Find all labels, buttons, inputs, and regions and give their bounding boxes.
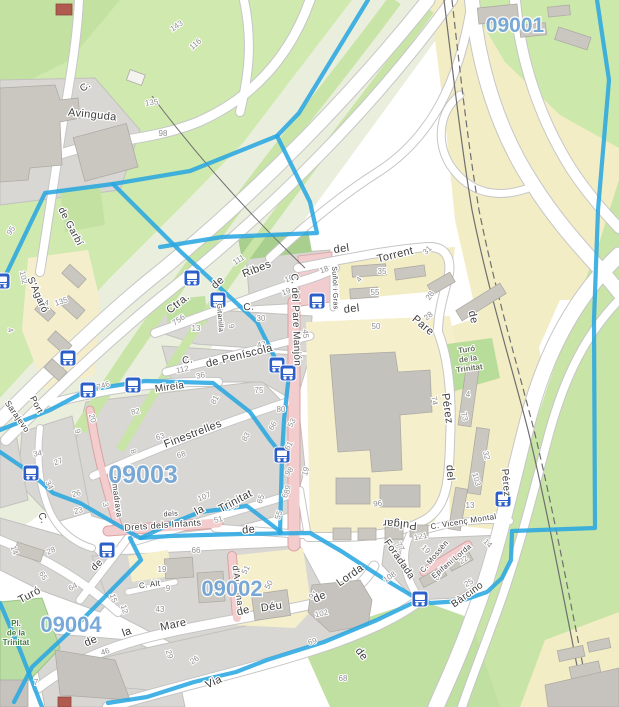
house-number: 80 [277, 405, 286, 414]
bus-stop-icon[interactable] [309, 293, 325, 309]
bus-stop-icon[interactable] [99, 542, 115, 558]
house-number: 68 [339, 674, 348, 683]
house-number: 13 [192, 324, 201, 333]
house-number: 19 [158, 565, 167, 574]
house-number: 66 [192, 546, 201, 555]
street-label: dels [163, 511, 178, 519]
street-label: de [242, 523, 256, 536]
house-number: 9 [166, 584, 171, 593]
street-label: C. [243, 302, 255, 314]
zone-label: 09004 [40, 612, 102, 637]
house-number: 55 [371, 288, 380, 297]
house-number: 30 [257, 314, 266, 323]
street-label: del [343, 302, 360, 316]
zone-label: 09001 [486, 14, 545, 37]
bus-stop-icon[interactable] [184, 270, 200, 286]
street-label: C. [182, 354, 194, 366]
house-number: 35 [378, 267, 387, 276]
house-number: 96 [373, 498, 384, 508]
bus-stop-icon[interactable] [125, 377, 141, 393]
bus-stop-icon[interactable] [23, 465, 39, 481]
street-label: del [443, 464, 456, 481]
map-canvas[interactable]: 1431161359895102541354111161930975613112… [0, 0, 619, 707]
zone-label: 09002 [201, 576, 262, 601]
map-viewport[interactable]: 1431161359895102541354111161930975613112… [0, 0, 619, 707]
house-number: 43 [156, 605, 165, 614]
house-number: 98 [159, 129, 168, 138]
house-number: 4 [466, 390, 471, 399]
house-number: 135 [144, 97, 159, 108]
house-number: 7 [34, 678, 39, 687]
house-number: 50 [372, 322, 381, 331]
bus-stop-icon[interactable] [80, 382, 96, 398]
street-label: del [333, 242, 350, 256]
bus-stop-icon[interactable] [412, 591, 428, 607]
bus-stop-icon[interactable] [0, 273, 10, 289]
house-number: 13 [466, 501, 475, 510]
bus-stop-icon[interactable] [60, 350, 76, 366]
bus-stop-icon[interactable] [280, 365, 296, 381]
house-number: 75 [255, 386, 264, 395]
zone-label: 09003 [108, 461, 178, 489]
